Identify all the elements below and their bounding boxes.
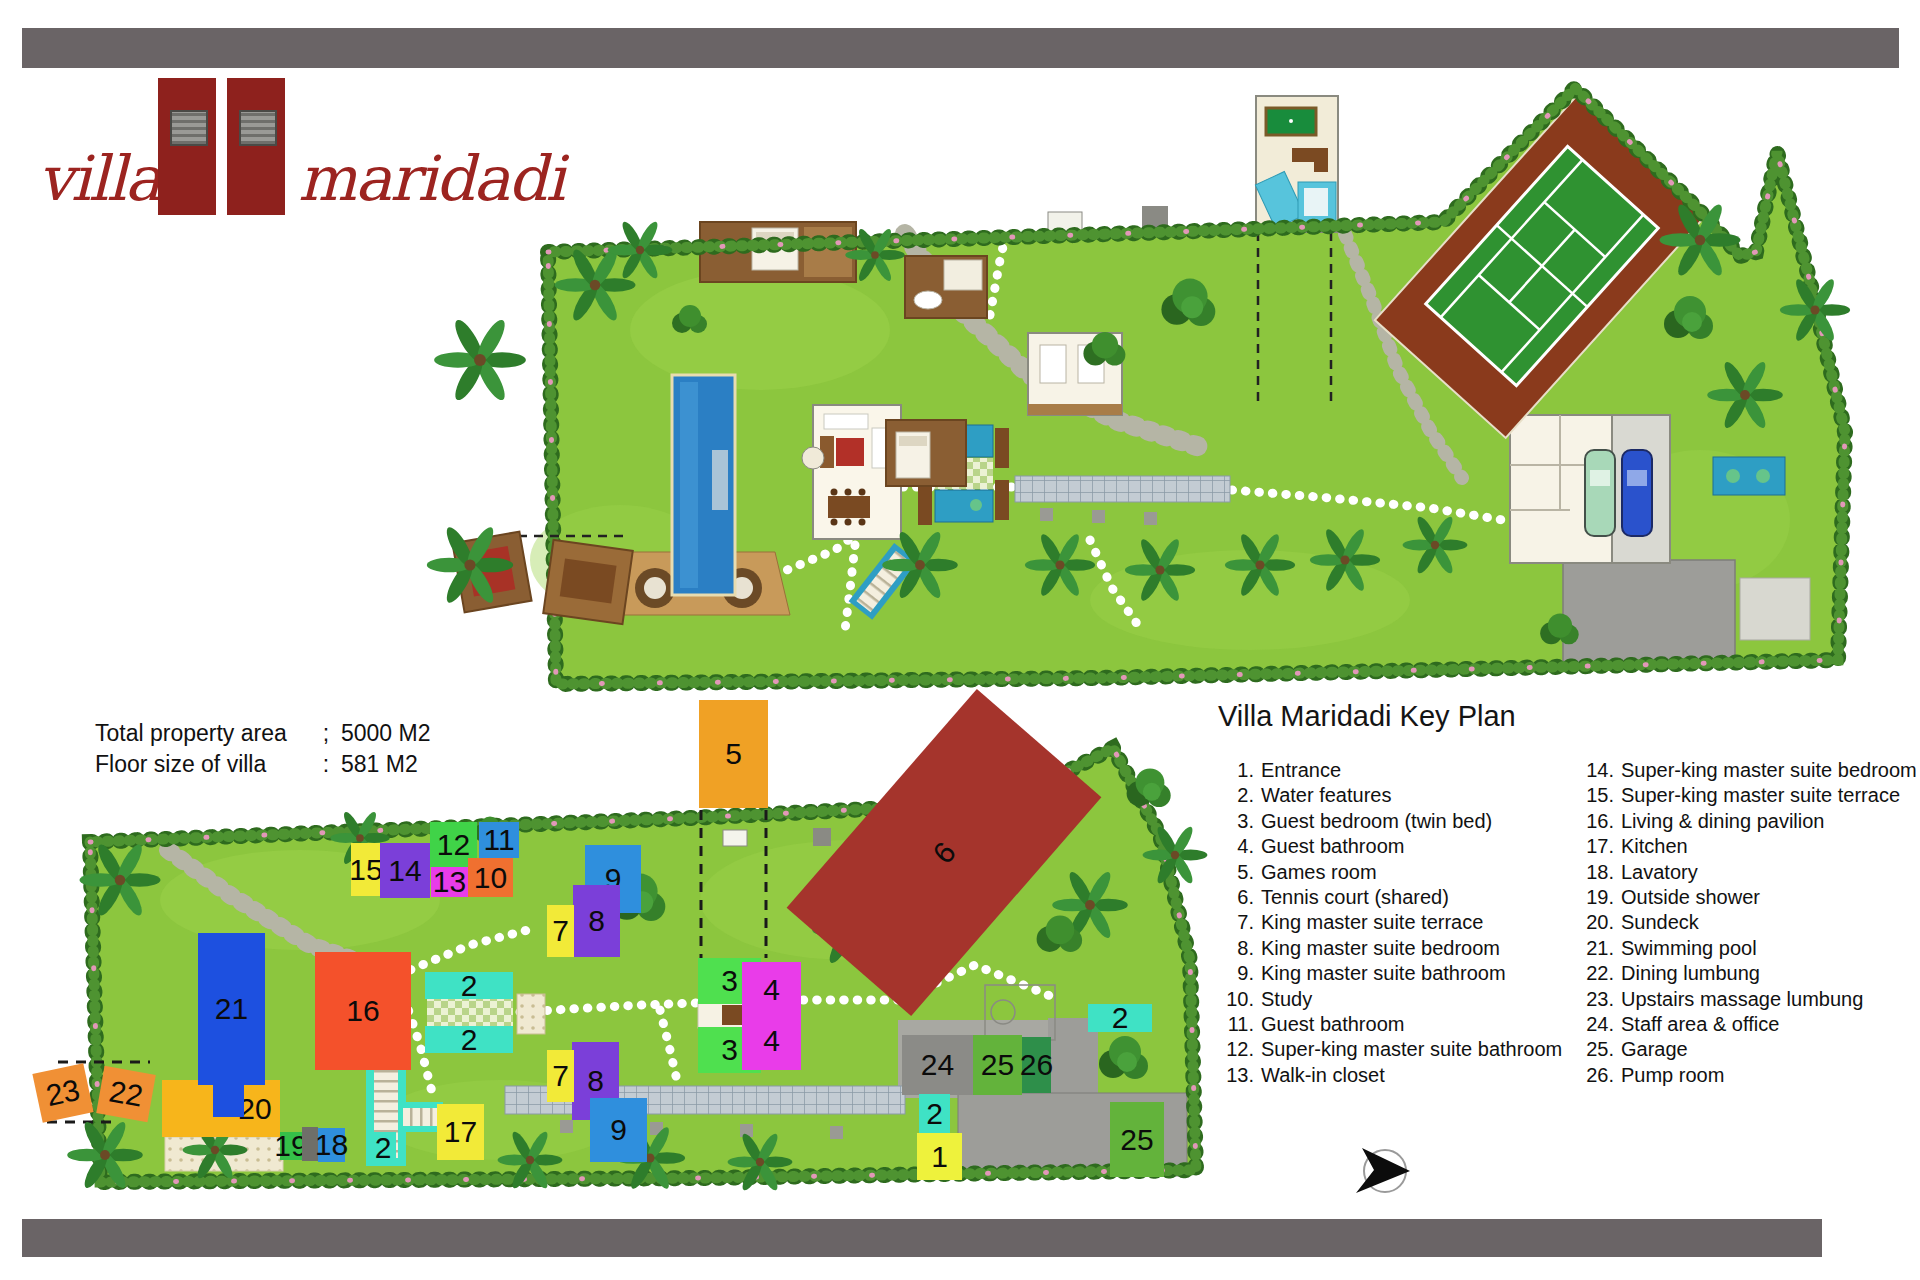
legend-item-label: Guest bedroom (twin bed): [1261, 809, 1492, 834]
north-arrow-icon: [1356, 1148, 1410, 1193]
legend-item-label: Guest bathroom: [1261, 834, 1404, 859]
legend-item-number: 22.: [1578, 961, 1614, 986]
legend-item: 11.Guest bathroom: [1218, 1012, 1576, 1037]
legend-item-number: 26.: [1578, 1063, 1614, 1088]
property-info-value: 5000 M2: [341, 718, 431, 749]
legend-item-number: 24.: [1578, 1012, 1614, 1037]
legend-item-label: King master suite bathroom: [1261, 961, 1506, 986]
legend-item-label: Staff area & office: [1621, 1012, 1779, 1037]
property-info-separator: ;: [311, 718, 341, 749]
legend-item-label: Guest bathroom: [1261, 1012, 1404, 1037]
legend-item: 24.Staff area & office: [1578, 1012, 1918, 1037]
legend-item-number: 4.: [1218, 834, 1254, 859]
legend-item-label: Living & dining pavilion: [1621, 809, 1824, 834]
legend-item-number: 15.: [1578, 783, 1614, 808]
legend-item-number: 7.: [1218, 910, 1254, 935]
key-plan-title: Villa Maridadi Key Plan: [1218, 700, 1516, 733]
legend-item-number: 21.: [1578, 936, 1614, 961]
legend-column-left: 1.Entrance2.Water features3.Guest bedroo…: [1218, 758, 1576, 1088]
legend-item-number: 6.: [1218, 885, 1254, 910]
legend-item: 4.Guest bathroom: [1218, 834, 1576, 859]
legend-item-label: Tennis court (shared): [1261, 885, 1449, 910]
legend-item: 14.Super-king master suite bedroom: [1578, 758, 1918, 783]
legend-item-number: 23.: [1578, 987, 1614, 1012]
legend-item-number: 8.: [1218, 936, 1254, 961]
legend-item-label: Entrance: [1261, 758, 1341, 783]
legend-item-label: Lavatory: [1621, 860, 1698, 885]
legend-item-number: 14.: [1578, 758, 1614, 783]
legend-item-number: 11.: [1218, 1012, 1254, 1037]
legend-item: 3.Guest bedroom (twin bed): [1218, 809, 1576, 834]
legend-item: 15.Super-king master suite terrace: [1578, 783, 1918, 808]
top-site-plan: [427, 88, 1850, 684]
legend-item-label: Super-king master suite terrace: [1621, 783, 1900, 808]
legend-item-label: King master suite bedroom: [1261, 936, 1500, 961]
page: villa maridadi: [0, 0, 1920, 1280]
legend-item-number: 16.: [1578, 809, 1614, 834]
property-info-label: Floor size of villa: [95, 749, 311, 780]
legend-item: 2.Water features: [1218, 783, 1576, 808]
legend-item: 13.Walk-in closet: [1218, 1063, 1576, 1088]
property-info-label: Total property area: [95, 718, 311, 749]
legend-item-number: 9.: [1218, 961, 1254, 986]
legend-item-label: Sundeck: [1621, 910, 1699, 935]
property-info-row: Total property area ; 5000 M2: [95, 718, 431, 749]
legend-item: 1.Entrance: [1218, 758, 1576, 783]
legend-item: 9.King master suite bathroom: [1218, 961, 1576, 986]
legend-item: 16.Living & dining pavilion: [1578, 809, 1918, 834]
legend-item-number: 12.: [1218, 1037, 1254, 1062]
legend-item-number: 3.: [1218, 809, 1254, 834]
legend-item: 5.Games room: [1218, 860, 1576, 885]
legend-item: 21.Swimming pool: [1578, 936, 1918, 961]
legend-item-label: Upstairs massage lumbung: [1621, 987, 1863, 1012]
legend-item-number: 10.: [1218, 987, 1254, 1012]
legend-item-label: King master suite terrace: [1261, 910, 1483, 935]
legend-item-label: Kitchen: [1621, 834, 1688, 859]
legend-item: 26.Pump room: [1578, 1063, 1918, 1088]
legend-item-label: Swimming pool: [1621, 936, 1757, 961]
legend-item: 6.Tennis court (shared): [1218, 885, 1576, 910]
legend-item-label: Outside shower: [1621, 885, 1760, 910]
legend-item-number: 1.: [1218, 758, 1254, 783]
legend-item-number: 18.: [1578, 860, 1614, 885]
legend-item: 8.King master suite bedroom: [1218, 936, 1576, 961]
legend-item: 17.Kitchen: [1578, 834, 1918, 859]
legend-item: 20.Sundeck: [1578, 910, 1918, 935]
legend-item-number: 25.: [1578, 1037, 1614, 1062]
property-info-separator: :: [311, 749, 341, 780]
legend-item-number: 5.: [1218, 860, 1254, 885]
legend-item: 25.Garage: [1578, 1037, 1918, 1062]
legend-item-number: 13.: [1218, 1063, 1254, 1088]
legend-item-label: Water features: [1261, 783, 1391, 808]
legend-item-label: Games room: [1261, 860, 1377, 885]
legend-item-label: Garage: [1621, 1037, 1688, 1062]
legend-item: 19.Outside shower: [1578, 885, 1918, 910]
legend-item: 18.Lavatory: [1578, 860, 1918, 885]
legend-item-label: Super-king master suite bedroom: [1621, 758, 1917, 783]
legend-item-label: Walk-in closet: [1261, 1063, 1385, 1088]
legend-item-label: Dining lumbung: [1621, 961, 1760, 986]
legend-item: 22.Dining lumbung: [1578, 961, 1918, 986]
legend-item-label: Super-king master suite bathroom: [1261, 1037, 1562, 1062]
legend-item-number: 19.: [1578, 885, 1614, 910]
legend-item: 12.Super-king master suite bathroom: [1218, 1037, 1576, 1062]
property-info: Total property area ; 5000 M2 Floor size…: [95, 718, 431, 780]
legend-column-right: 14.Super-king master suite bedroom15.Sup…: [1578, 758, 1918, 1088]
legend-item-number: 2.: [1218, 783, 1254, 808]
legend-item-number: 20.: [1578, 910, 1614, 935]
legend-item: 7.King master suite terrace: [1218, 910, 1576, 935]
legend-item-number: 17.: [1578, 834, 1614, 859]
property-info-value: 581 M2: [341, 749, 418, 780]
property-info-row: Floor size of villa : 581 M2: [95, 749, 431, 780]
legend-item-label: Pump room: [1621, 1063, 1724, 1088]
key-plan-illustration: [47, 748, 1207, 1193]
legend-item-label: Study: [1261, 987, 1312, 1012]
legend-item: 10.Study: [1218, 987, 1576, 1012]
legend-item: 23.Upstairs massage lumbung: [1578, 987, 1918, 1012]
